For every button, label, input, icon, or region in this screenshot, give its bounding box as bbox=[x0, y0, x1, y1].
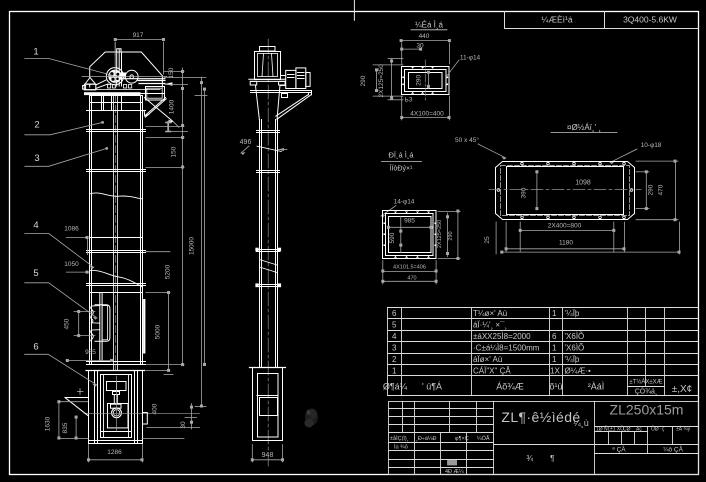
svg-text:150: 150 bbox=[168, 67, 175, 78]
svg-text:Ь3: Ь3 bbox=[405, 97, 413, 104]
svg-text:õ¹ù: õ¹ù bbox=[549, 382, 562, 392]
svg-text:150: 150 bbox=[171, 146, 178, 157]
svg-text:1: 1 bbox=[33, 47, 38, 58]
svg-text:±áXX25Ì8=2000: ±áXX25Ì8=2000 bbox=[473, 332, 531, 341]
svg-text:Äç: Äç bbox=[636, 426, 642, 433]
svg-text:CÁÏ"X" ÇÅ: CÁÏ"X" ÇÅ bbox=[473, 367, 511, 376]
svg-text:1: 1 bbox=[552, 344, 557, 353]
svg-text:470: 470 bbox=[658, 184, 665, 195]
svg-text:15000: 15000 bbox=[189, 237, 196, 255]
svg-text:·C±á¼Ì8=1500mm: ·C±á¼Ì8=1500mm bbox=[473, 344, 540, 353]
svg-text:±åÌÇ(Ì)¸: ±åÌÇ(Ì)¸ bbox=[390, 435, 409, 442]
svg-text:1: 1 bbox=[392, 367, 397, 376]
svg-text:²ÀáÌ: ²ÀáÌ bbox=[588, 382, 605, 392]
svg-text:30: 30 bbox=[416, 43, 424, 50]
svg-text:290: 290 bbox=[416, 74, 423, 85]
svg-text:1086: 1086 bbox=[64, 226, 79, 233]
svg-text:1400: 1400 bbox=[169, 99, 176, 114]
svg-text:2X400=800: 2X400=800 bbox=[548, 223, 582, 230]
svg-text:¼¸ù: ¼¸ù bbox=[573, 418, 589, 428]
svg-text:ZL250x15m: ZL250x15m bbox=[610, 402, 684, 418]
svg-text:450: 450 bbox=[64, 318, 71, 329]
svg-text:5200: 5200 bbox=[165, 264, 172, 279]
svg-text:290: 290 bbox=[448, 231, 454, 240]
svg-text:6: 6 bbox=[552, 332, 557, 341]
svg-text:2: 2 bbox=[34, 120, 39, 131]
svg-text:¶: ¶ bbox=[550, 454, 554, 463]
svg-text:¸Ð÷à¼Ð: ¸Ð÷à¼Ð bbox=[416, 436, 436, 442]
svg-text:'¼Ïþ: '¼Ïþ bbox=[565, 309, 580, 318]
svg-text:1630: 1630 bbox=[45, 416, 52, 431]
svg-text:1Ø ÑL: 1Ø ÑL bbox=[596, 426, 611, 433]
svg-text:3: 3 bbox=[34, 153, 39, 164]
svg-text:25: 25 bbox=[484, 236, 491, 244]
svg-text:985: 985 bbox=[404, 218, 415, 225]
svg-text:5: 5 bbox=[33, 268, 38, 279]
svg-text:¤Ø½Áï¸' ¸: ¤Ø½Áï¸' ¸ bbox=[567, 123, 601, 132]
svg-text:±À ¾ý: ±À ¾ý bbox=[676, 426, 691, 433]
svg-text:470: 470 bbox=[407, 276, 416, 282]
svg-text:ZL¶·ê½ìédé: ZL¶·ê½ìédé bbox=[501, 409, 580, 425]
svg-text:ÌÏòÐý×¹: ÌÏòÐý×¹ bbox=[390, 164, 413, 173]
svg-text:50 x 45°: 50 x 45° bbox=[455, 136, 479, 144]
svg-text:2X125=250: 2X125=250 bbox=[437, 220, 443, 248]
svg-text:'X6ÌÕ: 'X6ÌÕ bbox=[565, 332, 585, 341]
svg-text:±,X¢: ±,X¢ bbox=[672, 384, 693, 395]
svg-text:ÇÓ¾á¸: ÇÓ¾á¸ bbox=[635, 387, 658, 396]
svg-text:φ¶×Ç: φ¶×Ç bbox=[455, 436, 469, 442]
svg-text:1286: 1286 bbox=[107, 449, 122, 456]
svg-text:¾: ¾ bbox=[526, 454, 533, 463]
svg-text:Ø¶á¼: Ø¶á¼ bbox=[383, 382, 408, 392]
svg-text:948: 948 bbox=[262, 452, 274, 459]
svg-text:1X: 1X bbox=[550, 367, 560, 376]
svg-text:ª ÇÅ: ª ÇÅ bbox=[612, 445, 626, 454]
svg-text:3: 3 bbox=[392, 344, 397, 353]
svg-text:2: 2 bbox=[392, 355, 397, 364]
svg-text:30: 30 bbox=[180, 421, 187, 429]
svg-text:' ú¶Á: ' ú¶Á bbox=[422, 382, 442, 392]
svg-text:4: 4 bbox=[392, 332, 397, 341]
svg-text:3Q400-5.6KW: 3Q400-5.6KW bbox=[623, 15, 677, 25]
svg-text:5000: 5000 bbox=[155, 324, 162, 339]
svg-text:'X6ÌÕ: 'X6ÌÕ bbox=[565, 344, 585, 353]
svg-text:áÏ·¼'¸ ×¯¸: áÏ·¼'¸ ×¯¸ bbox=[473, 321, 507, 330]
svg-text:ÐÏ¸á Ì¸á: ÐÏ¸á Ì¸á bbox=[388, 151, 414, 160]
svg-text:10-φ18: 10-φ18 bbox=[641, 142, 662, 149]
svg-text:1050: 1050 bbox=[64, 261, 79, 268]
svg-text:Áõ¾Æ: Áõ¾Æ bbox=[496, 382, 524, 392]
svg-text:±T½ÀX±XÆ: ±T½ÀX±XÆ bbox=[629, 379, 662, 386]
svg-text:Ø¼Æ·•: Ø¼Æ·• bbox=[565, 367, 592, 376]
svg-text:T¼ø×' Aù: T¼ø×' Aù bbox=[473, 309, 507, 318]
svg-text:440: 440 bbox=[419, 33, 430, 40]
svg-text:590: 590 bbox=[389, 232, 396, 243]
svg-text:¼ô ÇÅ: ¼ô ÇÅ bbox=[663, 445, 684, 454]
svg-text:4: 4 bbox=[33, 220, 38, 231]
svg-text:290: 290 bbox=[648, 184, 655, 195]
svg-text:4Ð Æ¼: 4Ð Æ¼ bbox=[445, 469, 464, 475]
svg-text:400: 400 bbox=[152, 403, 159, 414]
svg-text:11-φ14: 11-φ14 bbox=[460, 55, 481, 62]
svg-text:6: 6 bbox=[392, 309, 397, 318]
svg-text:4X100=400: 4X100=400 bbox=[410, 111, 444, 118]
svg-text:áÏø×' Aù: áÏø×' Aù bbox=[473, 355, 502, 364]
svg-text:ÇØ: ÇØ bbox=[623, 427, 631, 433]
svg-text:¼ÆÈì¹á: ¼ÆÈì¹á bbox=[541, 15, 572, 25]
svg-text:290: 290 bbox=[360, 75, 367, 86]
svg-text:1180: 1180 bbox=[559, 239, 573, 246]
svg-text:1: 1 bbox=[552, 355, 557, 364]
svg-text:ÔØ ·ç: ÔØ ·ç bbox=[651, 426, 665, 433]
svg-text:390: 390 bbox=[521, 187, 528, 198]
svg-text:985: 985 bbox=[85, 349, 96, 356]
svg-text:5: 5 bbox=[392, 321, 397, 330]
svg-text:496: 496 bbox=[240, 139, 252, 146]
svg-text:835: 835 bbox=[62, 422, 69, 433]
svg-text:1098: 1098 bbox=[575, 180, 591, 187]
svg-text:6: 6 bbox=[33, 342, 38, 353]
svg-text:Ìù ¾õ: Ìù ¾õ bbox=[394, 444, 408, 451]
svg-text:¼ÖÃ: ¼ÖÃ bbox=[477, 435, 490, 442]
svg-text:1: 1 bbox=[552, 309, 557, 318]
svg-text:917: 917 bbox=[133, 32, 144, 39]
svg-text:¼Éá Ì¸á: ¼Éá Ì¸á bbox=[415, 21, 444, 30]
svg-text:14-φ14: 14-φ14 bbox=[394, 199, 415, 206]
svg-text:'¼Ïþ: '¼Ïþ bbox=[565, 355, 580, 364]
svg-text:2X125=250: 2X125=250 bbox=[378, 64, 385, 98]
svg-text:4X101.5=406: 4X101.5=406 bbox=[393, 265, 426, 271]
